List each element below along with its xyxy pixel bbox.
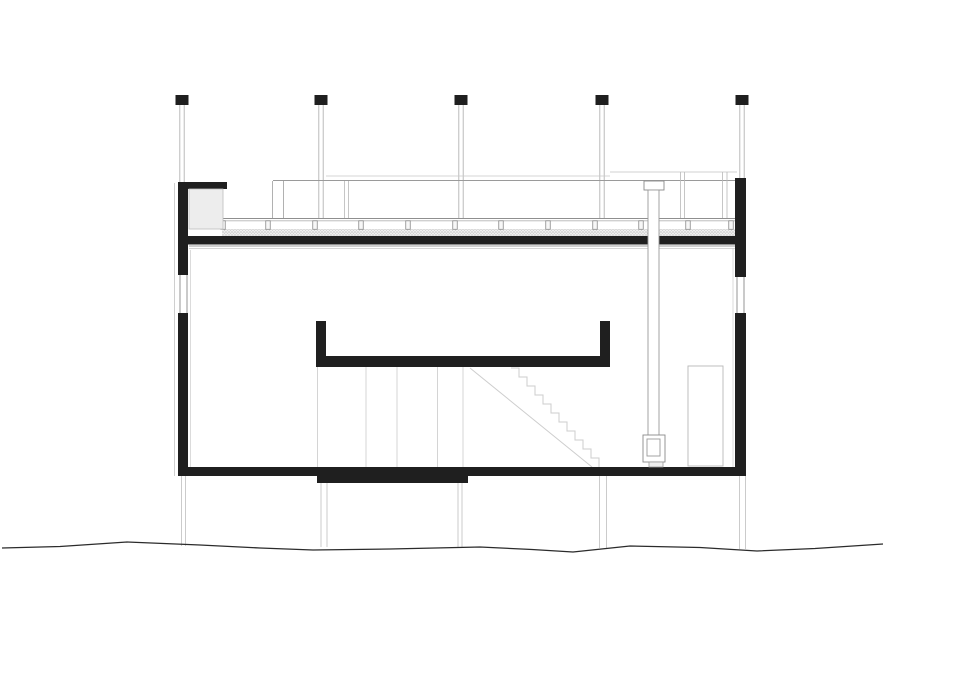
stair-stringer-line: [470, 368, 592, 467]
stair-well-bottom-bar: [316, 356, 610, 367]
insulation-block: [189, 189, 223, 229]
deck-pedestal: [313, 221, 318, 230]
right-wall-upper: [735, 178, 746, 277]
deck-pedestal: [266, 221, 271, 230]
deck-pedestal: [453, 221, 458, 230]
deck-pedestal: [729, 221, 734, 230]
deck-pedestal: [546, 221, 551, 230]
column-cap: [315, 95, 328, 105]
floor-slab-thickening: [317, 467, 468, 483]
column-cap: [176, 95, 189, 105]
deck-pedestal: [359, 221, 364, 230]
left-wall-upper: [178, 182, 188, 275]
terrain-layer: [2, 542, 883, 552]
deck-pedestal: [686, 221, 691, 230]
drawing-sheet: [0, 0, 960, 678]
deck-pedestal: [406, 221, 411, 230]
deck-pedestal: [639, 221, 644, 230]
stair-steps: [511, 368, 599, 467]
stove-base: [649, 462, 663, 467]
chimney-flue: [648, 190, 659, 436]
deck-pedestal: [499, 221, 504, 230]
right-wall-lower: [735, 313, 746, 476]
terrain-line: [2, 542, 883, 552]
left-wall-lower: [178, 313, 188, 476]
chimney-cap: [644, 181, 664, 190]
column-cap: [736, 95, 749, 105]
background-door: [688, 366, 723, 466]
deck-pedestal: [593, 221, 598, 230]
column-cap: [455, 95, 468, 105]
column-cap: [596, 95, 609, 105]
roof-slab: [178, 236, 746, 245]
building-section-drawing: [0, 0, 960, 678]
